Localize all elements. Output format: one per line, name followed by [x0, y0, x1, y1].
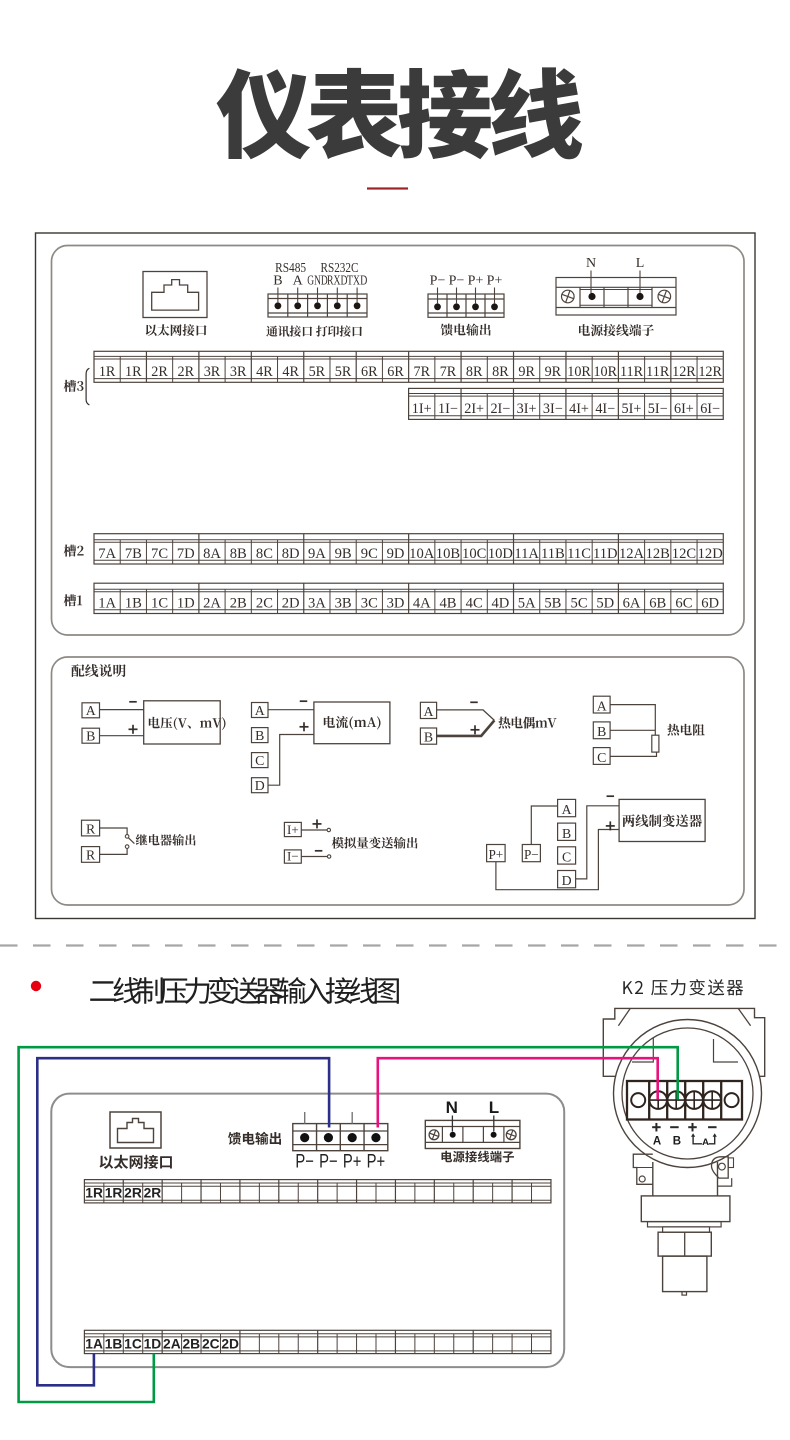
svg-text:P+: P+ [488, 847, 503, 862]
svg-text:9D: 9D [387, 546, 405, 562]
svg-text:2C: 2C [202, 1336, 220, 1351]
svg-text:1D: 1D [144, 1336, 162, 1351]
svg-text:I+: I+ [287, 822, 299, 837]
svg-text:6A: 6A [623, 596, 641, 612]
svg-text:2C: 2C [256, 596, 273, 612]
svg-text:9C: 9C [361, 546, 378, 562]
svg-text:9R: 9R [518, 364, 535, 380]
svg-text:2I+: 2I+ [464, 401, 484, 417]
svg-text:7C: 7C [151, 546, 168, 562]
svg-text:2B: 2B [230, 596, 247, 612]
svg-text:12A: 12A [619, 546, 645, 562]
svg-text:3R: 3R [230, 364, 247, 380]
svg-text:R: R [86, 848, 96, 863]
svg-text:N: N [586, 256, 596, 271]
svg-text:3I−: 3I− [543, 401, 563, 417]
svg-text:7R: 7R [413, 364, 430, 380]
svg-text:8A: 8A [203, 546, 221, 562]
svg-text:10C: 10C [462, 546, 486, 562]
svg-text:P−: P− [449, 274, 465, 289]
svg-text:1R: 1R [125, 364, 142, 380]
svg-text:1C: 1C [151, 596, 168, 612]
svg-text:1I+: 1I+ [412, 401, 432, 417]
svg-text:5D: 5D [596, 596, 614, 612]
svg-text:3D: 3D [387, 596, 405, 612]
svg-text:P+: P+ [487, 274, 503, 289]
svg-text:8D: 8D [282, 546, 300, 562]
svg-text:A: A [255, 703, 265, 718]
svg-text:1B: 1B [125, 596, 142, 612]
svg-text:6B: 6B [649, 596, 666, 612]
svg-text:9B: 9B [335, 546, 352, 562]
svg-text:5I−: 5I− [648, 401, 668, 417]
svg-text:5R: 5R [309, 364, 326, 380]
svg-text:1B: 1B [105, 1336, 123, 1351]
svg-text:8C: 8C [256, 546, 273, 562]
svg-text:C: C [562, 850, 571, 865]
svg-text:11A: 11A [514, 546, 539, 562]
svg-text:B: B [597, 724, 606, 739]
svg-text:P−: P− [295, 1152, 314, 1173]
svg-text:2R: 2R [151, 364, 168, 380]
svg-text:P+: P+ [343, 1152, 362, 1173]
svg-text:11R: 11R [620, 364, 644, 380]
svg-text:2I−: 2I− [490, 401, 510, 417]
svg-text:10D: 10D [488, 546, 513, 562]
svg-text:2R: 2R [177, 364, 194, 380]
svg-text:8R: 8R [466, 364, 483, 380]
svg-text:3C: 3C [361, 596, 378, 612]
svg-text:D: D [255, 778, 265, 793]
svg-text:P+: P+ [367, 1152, 386, 1173]
svg-text:P−: P− [524, 847, 539, 862]
svg-text:B: B [255, 728, 264, 743]
svg-text:6R: 6R [361, 364, 378, 380]
svg-text:2D: 2D [282, 596, 300, 612]
svg-text:2R: 2R [144, 1186, 162, 1201]
svg-text:7B: 7B [125, 546, 142, 562]
svg-text:L: L [636, 256, 645, 271]
svg-text:2D: 2D [221, 1336, 239, 1351]
svg-text:4C: 4C [466, 596, 483, 612]
svg-text:1R: 1R [105, 1186, 123, 1201]
svg-text:P−: P− [319, 1152, 338, 1173]
svg-text:12R: 12R [672, 364, 696, 380]
svg-text:5B: 5B [544, 596, 561, 612]
svg-text:RS485: RS485 [275, 261, 306, 276]
svg-text:7A: 7A [98, 546, 116, 562]
svg-text:6I−: 6I− [700, 401, 720, 417]
svg-text:A: A [424, 704, 434, 719]
svg-text:B: B [86, 729, 95, 744]
svg-text:B: B [673, 1136, 681, 1148]
svg-text:4R: 4R [282, 364, 299, 380]
svg-text:11C: 11C [567, 546, 591, 562]
svg-text:8R: 8R [492, 364, 509, 380]
svg-text:1A: 1A [98, 596, 116, 612]
svg-text:8B: 8B [230, 546, 247, 562]
svg-text:6C: 6C [675, 596, 692, 612]
svg-text:3I+: 3I+ [517, 401, 537, 417]
svg-text:2B: 2B [182, 1336, 200, 1351]
svg-text:A: A [86, 703, 96, 718]
svg-text:10B: 10B [436, 546, 461, 562]
svg-text:4D: 4D [491, 596, 509, 612]
svg-text:5I+: 5I+ [622, 401, 642, 417]
svg-text:7D: 7D [177, 546, 195, 562]
svg-text:3R: 3R [204, 364, 221, 380]
svg-text:1C: 1C [124, 1336, 142, 1351]
svg-text:B: B [424, 730, 433, 745]
svg-text:N: N [446, 1098, 458, 1117]
svg-text:2A: 2A [163, 1336, 181, 1351]
svg-text:5A: 5A [518, 596, 536, 612]
svg-text:1A: 1A [85, 1336, 103, 1351]
svg-text:4A: 4A [413, 596, 431, 612]
svg-text:RS232C: RS232C [321, 261, 359, 276]
svg-text:3B: 3B [335, 596, 352, 612]
svg-text:1R: 1R [99, 364, 116, 380]
svg-text:A: A [562, 802, 572, 817]
svg-text:6R: 6R [387, 364, 404, 380]
svg-text:1I−: 1I− [438, 401, 458, 417]
svg-text:7R: 7R [440, 364, 457, 380]
svg-text:5R: 5R [335, 364, 352, 380]
svg-text:4R: 4R [256, 364, 273, 380]
svg-text:A: A [597, 698, 607, 713]
svg-text:6I+: 6I+ [674, 401, 694, 417]
svg-text:4I+: 4I+ [569, 401, 589, 417]
svg-text:4I−: 4I− [595, 401, 615, 417]
svg-text:2A: 2A [203, 596, 221, 612]
svg-text:D: D [562, 873, 572, 888]
svg-text:2R: 2R [124, 1186, 142, 1201]
svg-text:10R: 10R [593, 364, 617, 380]
svg-text:1D: 1D [177, 596, 195, 612]
svg-text:12C: 12C [672, 546, 696, 562]
svg-text:6D: 6D [701, 596, 719, 612]
svg-text:10R: 10R [567, 364, 591, 380]
svg-text:A: A [702, 1137, 709, 1148]
svg-text:C: C [597, 750, 606, 765]
svg-text:11R: 11R [646, 364, 670, 380]
svg-text:3A: 3A [308, 596, 326, 612]
svg-text:11B: 11B [541, 546, 565, 562]
svg-text:1R: 1R [85, 1186, 103, 1201]
svg-text:12R: 12R [698, 364, 722, 380]
svg-text:L: L [489, 1098, 499, 1117]
svg-text:10A: 10A [409, 546, 435, 562]
svg-text:B: B [562, 826, 571, 841]
svg-text:11D: 11D [593, 546, 618, 562]
svg-text:12D: 12D [698, 546, 723, 562]
svg-text:12B: 12B [646, 546, 671, 562]
svg-text:4B: 4B [439, 596, 456, 612]
svg-text:I−: I− [287, 849, 299, 864]
svg-text:5C: 5C [571, 596, 588, 612]
svg-text:9R: 9R [545, 364, 562, 380]
svg-text:A: A [653, 1136, 661, 1148]
svg-text:R: R [86, 821, 96, 836]
svg-text:9A: 9A [308, 546, 326, 562]
svg-text:C: C [255, 753, 264, 768]
svg-text:P+: P+ [468, 274, 484, 289]
svg-text:P−: P− [430, 274, 446, 289]
